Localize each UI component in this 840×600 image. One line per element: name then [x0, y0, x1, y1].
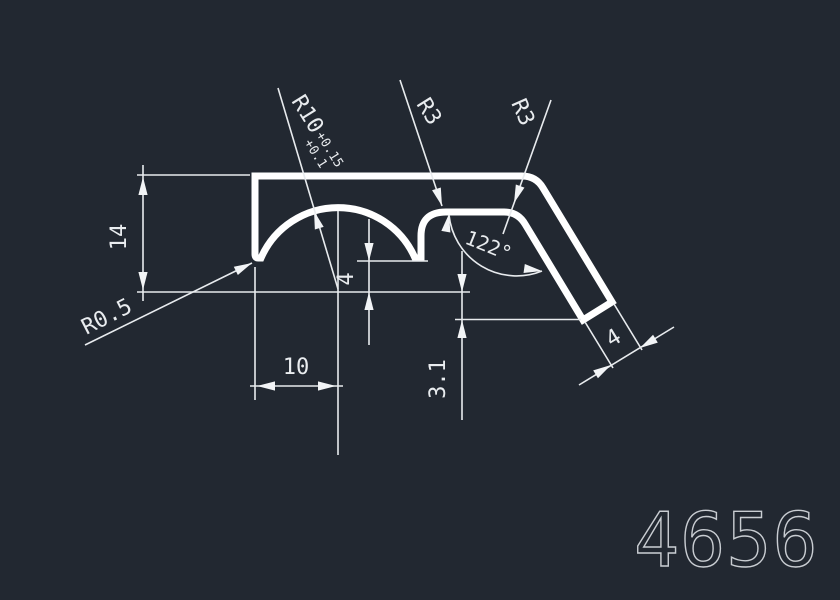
- dim-arrow-icon: [457, 320, 466, 338]
- part-number: 4656: [634, 496, 819, 584]
- dim-arrow-icon: [510, 185, 525, 205]
- dim-31-label: 3.1: [426, 359, 451, 399]
- r3-outer-label: R3: [506, 95, 540, 129]
- dim-radius-r10: R10 +0.15 +0.1: [278, 88, 350, 289]
- dim-radius-r3-inner: R3: [400, 80, 446, 207]
- dim-arrow-icon: [138, 272, 147, 290]
- dim-arrow-icon: [364, 243, 373, 261]
- dim-4-notch-label: 4: [334, 272, 359, 285]
- dim-arrow-icon: [457, 274, 466, 292]
- dim-arrow-icon: [138, 177, 147, 195]
- dim-arrow-icon: [638, 335, 658, 352]
- angle-122-label: 122°: [462, 225, 516, 265]
- dim-radius-r3-outer: R3: [503, 95, 551, 234]
- r3-inner-label: R3: [411, 94, 446, 130]
- dim-arrow-icon: [364, 292, 373, 310]
- dim-10-label: 10: [283, 355, 310, 380]
- part-profile-outline: [255, 176, 612, 320]
- dim-arrow-icon: [257, 381, 275, 390]
- cad-drawing-svg: 14 10 4 3.1 4 122°: [0, 0, 840, 600]
- cad-drawing-canvas: 14 10 4 3.1 4 122°: [0, 0, 840, 600]
- dim-14-label: 14: [107, 224, 132, 251]
- dim-height-14: 14: [107, 165, 470, 301]
- dim-arrow-icon: [318, 381, 336, 390]
- dim-4-leg-label: 4: [602, 324, 626, 352]
- dim-arrow-icon: [432, 187, 446, 207]
- dim-notch-4: 4: [334, 219, 428, 345]
- dim-arrow-icon: [234, 259, 254, 275]
- dim-radius-r05: R0.5: [78, 259, 254, 345]
